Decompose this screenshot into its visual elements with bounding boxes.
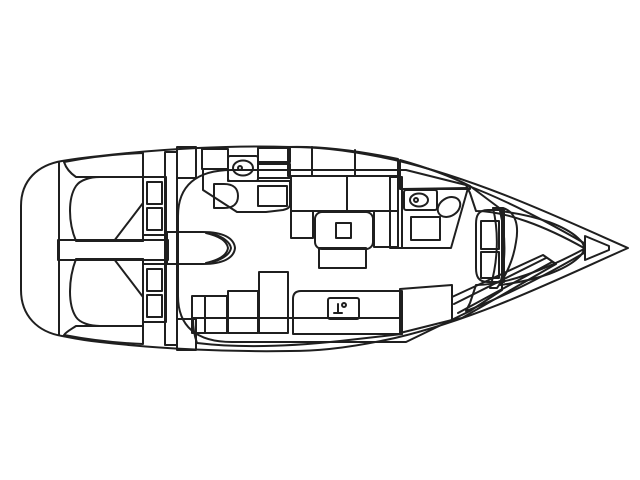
- galley-cabinet: [205, 296, 227, 333]
- saloon-table: [315, 212, 373, 249]
- forward-head-shower-pan: [411, 217, 440, 240]
- aft-head: [202, 148, 290, 212]
- starboard-bench-area: [400, 255, 556, 333]
- galley-counter-low: [228, 291, 258, 333]
- saloon: [288, 147, 398, 268]
- aft-corridor: [58, 240, 168, 260]
- bow-anchor-locker: [585, 236, 609, 260]
- forward-head: [390, 160, 470, 248]
- nav-bench: [400, 285, 452, 333]
- aft-head-shower-pan: [258, 186, 287, 206]
- aft-port-pillow-1: [147, 182, 162, 204]
- galley: [192, 272, 402, 346]
- aft-head-locker: [202, 149, 228, 169]
- settee-front-bench: [319, 248, 366, 268]
- floorplan-canvas: [0, 0, 640, 480]
- settee-left-seat: [291, 211, 313, 238]
- aft-starboard-deck-band: [64, 326, 143, 344]
- galley-counter-high: [259, 272, 288, 333]
- aft-starboard-pillow-2: [147, 295, 162, 317]
- forward-cabin: [466, 185, 609, 311]
- aft-head-sink-drain: [238, 166, 242, 170]
- aft-starboard-sheet-fold: [114, 259, 143, 297]
- companionway-step-line-1: [206, 233, 228, 263]
- aft-head-shelf-1: [258, 148, 290, 162]
- mast-step-icon: [336, 223, 351, 238]
- forecabin-port-shelf: [466, 185, 584, 248]
- aft-port-sheet-fold: [114, 203, 143, 241]
- forward-head-sink-drain: [414, 198, 418, 202]
- aft-starboard-pillow-1: [147, 269, 162, 291]
- galley-sink: [328, 298, 359, 319]
- settee-back-row: [291, 176, 398, 211]
- aft-port-deck-band: [64, 153, 143, 177]
- aft-port-pillow-2: [147, 208, 162, 230]
- aft-locker-top: [177, 147, 196, 178]
- aft-cabins: [58, 147, 235, 350]
- aft-cabin-port-bed: [70, 177, 143, 241]
- galley-faucet-icon: [334, 304, 342, 313]
- settee-right-seat: [374, 211, 398, 247]
- aft-cabin-starboard-bed: [70, 259, 143, 326]
- galley-sink-drain: [342, 303, 346, 307]
